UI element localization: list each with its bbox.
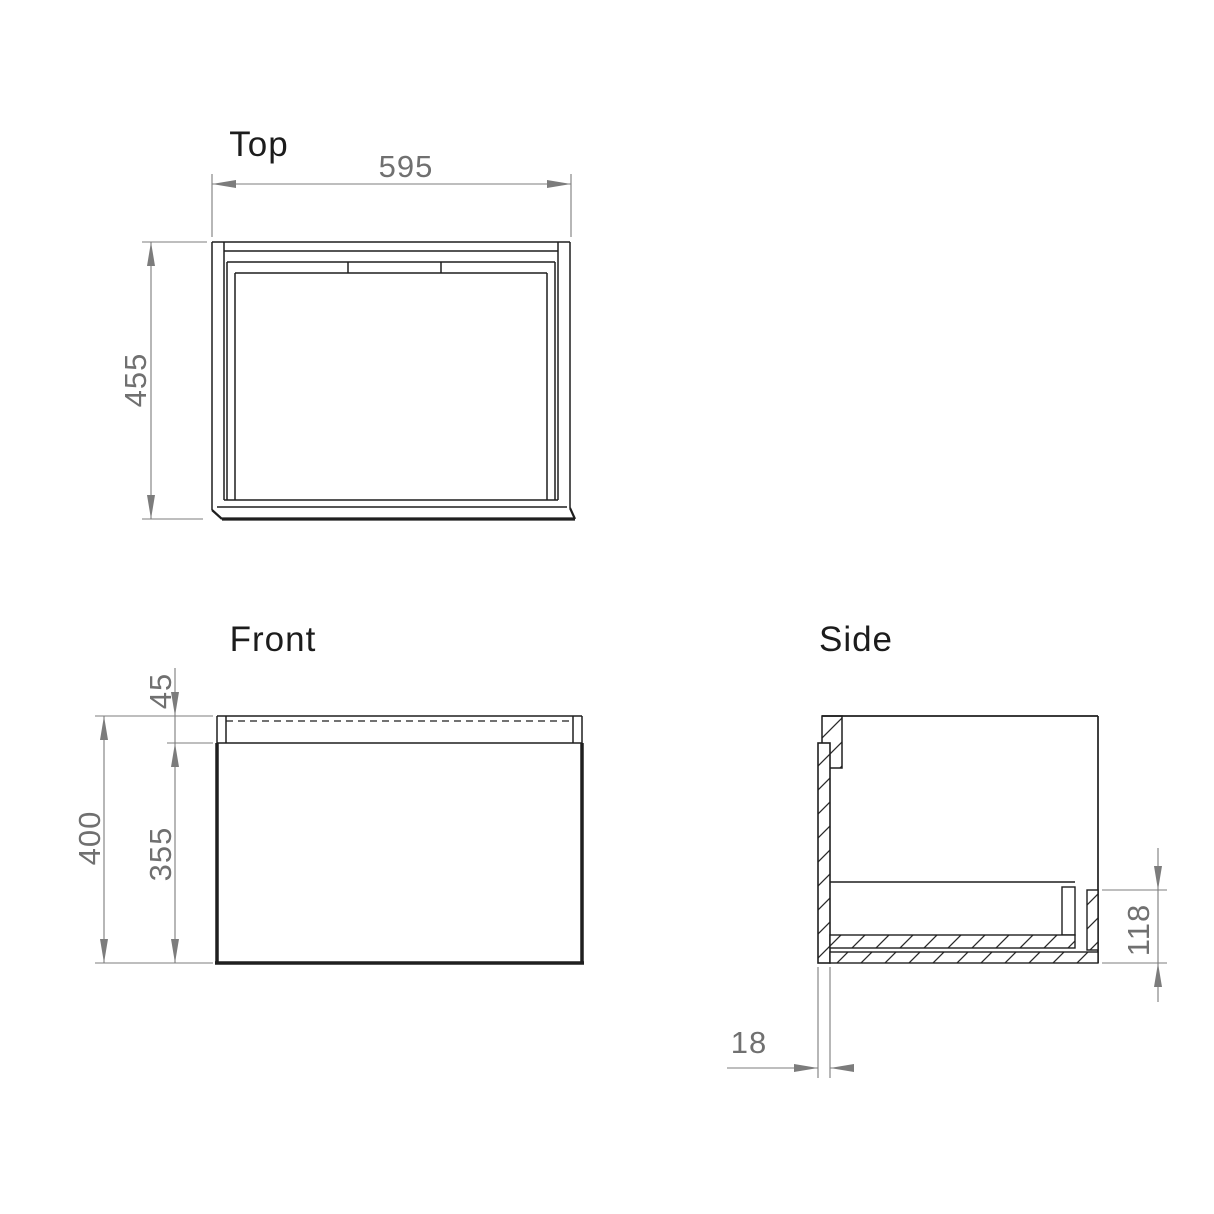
top-view-geometry bbox=[212, 242, 575, 519]
front-view-total-height-value: 400 bbox=[72, 811, 107, 866]
arrowhead-right bbox=[547, 180, 571, 188]
arrowhead-down bbox=[171, 939, 179, 963]
arrowhead-down bbox=[100, 939, 108, 963]
front-view-top-rail-value: 45 bbox=[143, 673, 178, 709]
top-view-label: Top bbox=[229, 125, 288, 164]
arrowhead-down bbox=[1154, 866, 1162, 890]
side-view-thickness-dimension bbox=[727, 967, 854, 1078]
arrowhead-up bbox=[171, 743, 179, 767]
front-view-label: Front bbox=[230, 620, 317, 659]
side-view-label: Side bbox=[819, 620, 893, 659]
side-view-panel-thickness-value: 18 bbox=[731, 1025, 767, 1060]
arrowhead-up bbox=[100, 716, 108, 740]
arrowhead-left bbox=[212, 180, 236, 188]
side-view-back-rail-section bbox=[1087, 890, 1098, 950]
arrowhead-up bbox=[1154, 963, 1162, 987]
top-view-front-chamfer-left bbox=[212, 510, 222, 519]
side-view-drawer-bottom-section bbox=[830, 935, 1075, 948]
front-view-drawer-front-value: 355 bbox=[143, 827, 178, 882]
arrowhead-up bbox=[147, 242, 155, 266]
top-view-front-chamfer-right bbox=[570, 508, 575, 519]
side-view-bottom-section-value: 118 bbox=[1121, 904, 1156, 956]
cabinet-dimension-drawing: Top bbox=[0, 0, 1214, 1214]
front-view: Front 400 4 bbox=[72, 620, 584, 963]
side-view-drawer-back-panel bbox=[1062, 887, 1075, 935]
front-view-geometry bbox=[215, 716, 584, 963]
technical-drawing-page: Top bbox=[0, 0, 1214, 1214]
top-view-depth-value: 455 bbox=[118, 353, 153, 408]
side-view-drawer-front-section bbox=[818, 743, 830, 963]
top-view-width-value: 595 bbox=[379, 149, 434, 184]
front-view-dimensions bbox=[95, 668, 213, 963]
side-view-geometry bbox=[818, 716, 1098, 963]
top-view: Top bbox=[118, 125, 575, 519]
arrowhead-right bbox=[794, 1064, 818, 1072]
side-view-cabinet-bottom-section bbox=[830, 952, 1098, 963]
arrowhead-left bbox=[830, 1064, 854, 1072]
side-view: Side 118 bbox=[727, 620, 1167, 1078]
arrowhead-down bbox=[147, 495, 155, 519]
